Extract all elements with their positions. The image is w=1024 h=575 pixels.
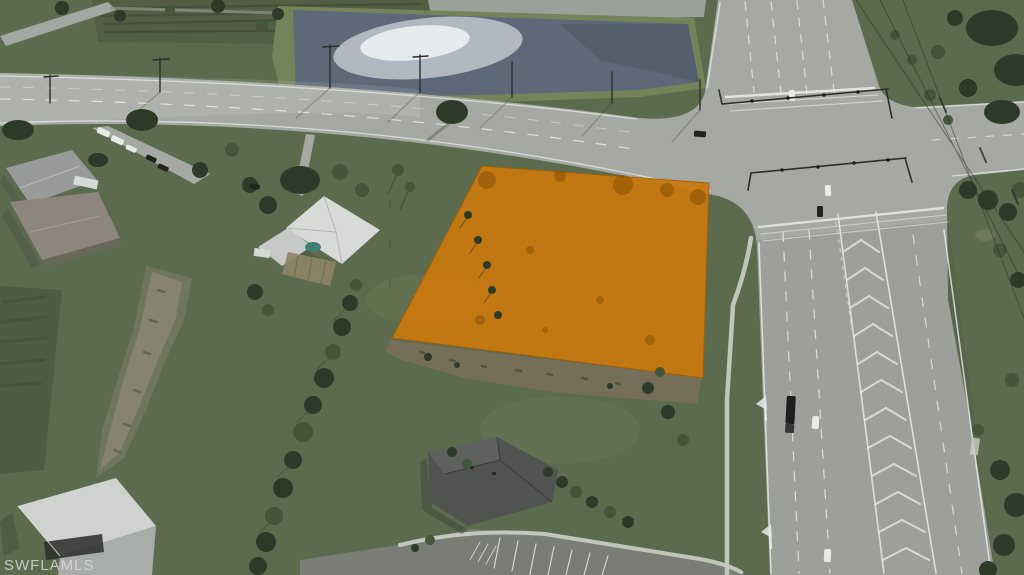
roof-vent bbox=[492, 472, 496, 475]
scrub-clump bbox=[454, 362, 460, 368]
aerial-photo: SWFLAMLS bbox=[0, 0, 1024, 575]
watermark-text: SWFLAMLS bbox=[4, 557, 95, 574]
vehicle-white-car bbox=[825, 185, 832, 196]
scrub-clump bbox=[424, 353, 432, 361]
scrub-clump bbox=[607, 383, 613, 389]
pool bbox=[305, 242, 321, 252]
aerial-photo-canvas: SWFLAMLS bbox=[0, 0, 1024, 575]
vehicle-dark-car bbox=[694, 130, 706, 137]
vehicle-white-car bbox=[824, 549, 832, 562]
vehicle-dark-car bbox=[817, 206, 823, 217]
vehicle-white-car bbox=[789, 90, 796, 101]
vehicle-white-car bbox=[812, 416, 820, 429]
